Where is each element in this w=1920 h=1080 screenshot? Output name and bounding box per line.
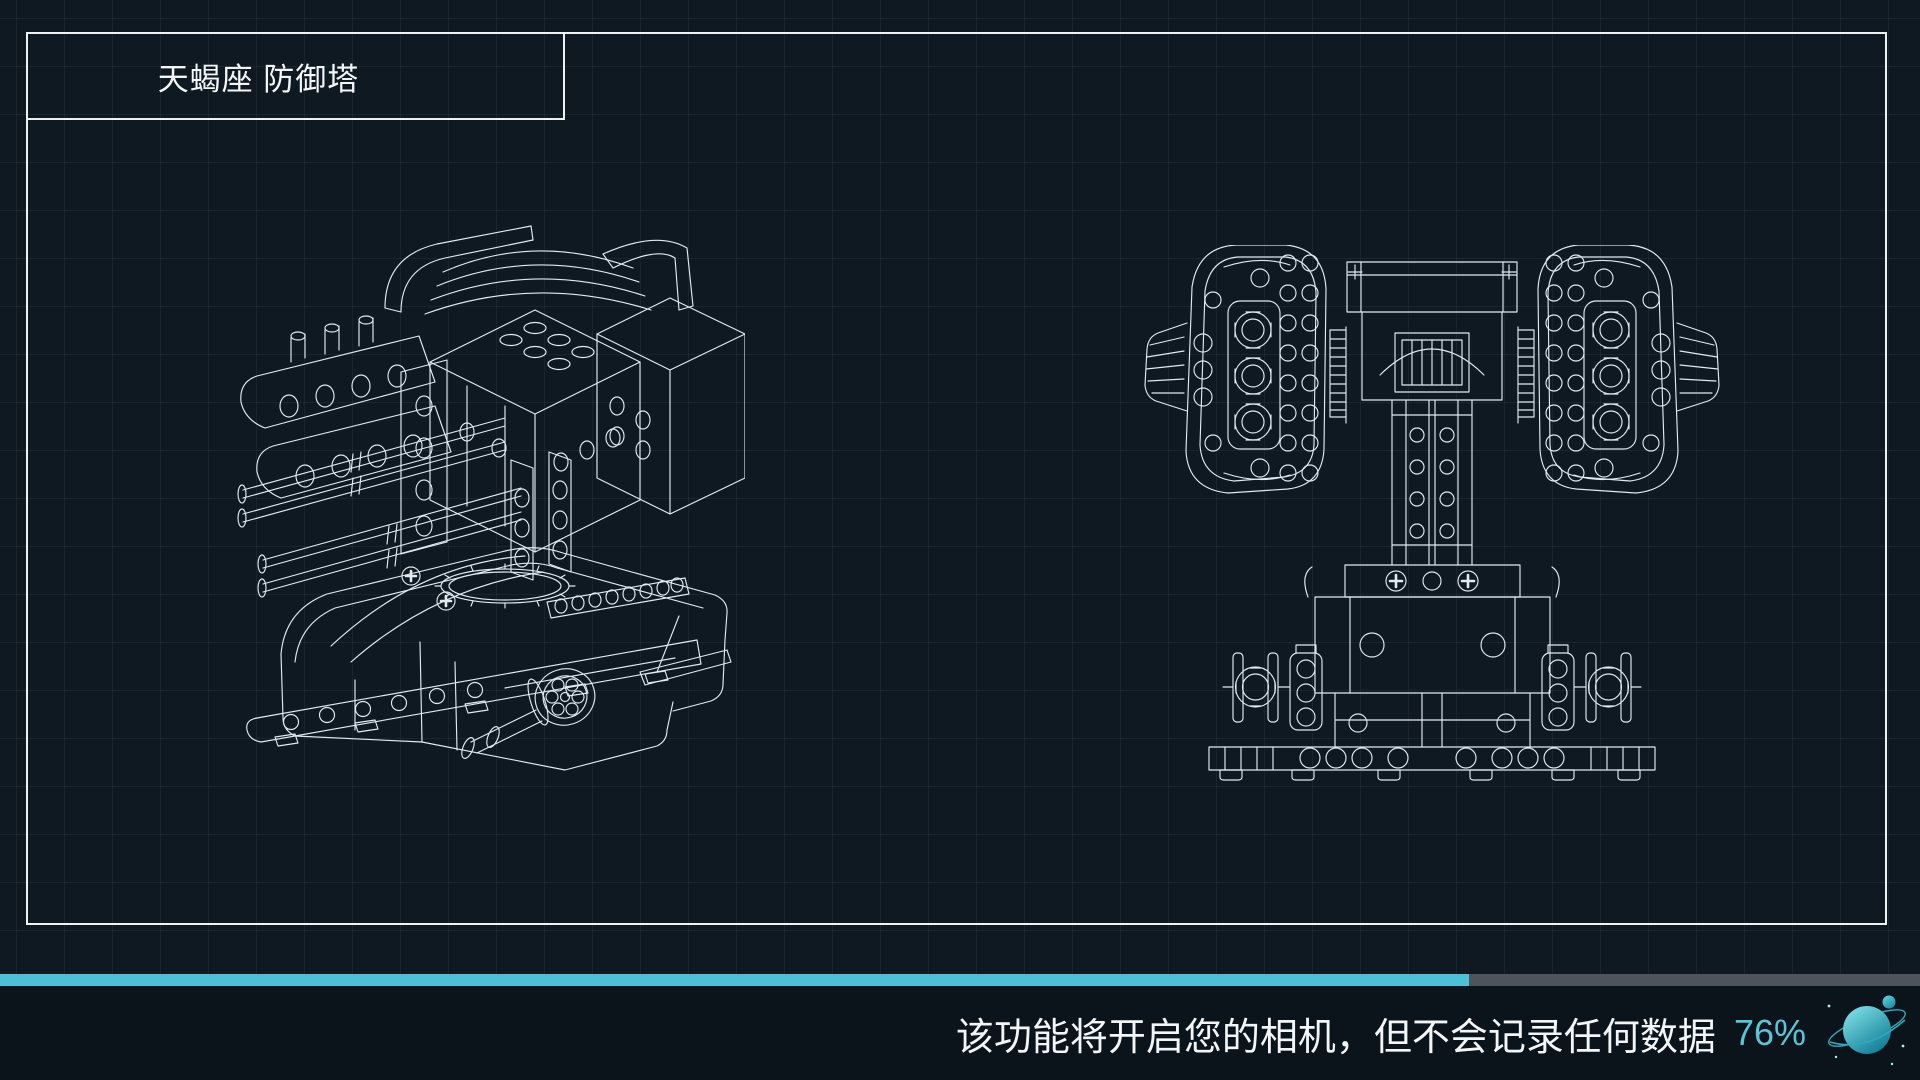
progress-bar-fill	[0, 974, 1469, 986]
turntable-gear	[435, 564, 575, 608]
base-plate	[247, 640, 701, 746]
handle-left	[385, 226, 533, 312]
launcher-pods	[241, 316, 451, 498]
progress-bar	[0, 974, 1920, 986]
page-title: 天蝎座 防御塔	[158, 54, 360, 99]
front-center-structure	[1209, 262, 1655, 780]
model-front-view	[1140, 245, 1725, 785]
turret-base	[281, 548, 731, 770]
blueprint-canvas: 天蝎座 防御塔	[0, 0, 1920, 986]
turret-top-arcs	[425, 251, 651, 314]
progress-percent: 76%	[1734, 1012, 1806, 1054]
model-isometric-view	[205, 210, 745, 800]
turret-body	[430, 310, 640, 552]
rear-pod	[597, 298, 745, 514]
planet-icon	[1822, 993, 1910, 1073]
footer: 该功能将开启您的相机，但不会记录任何数据 76%	[0, 986, 1920, 1080]
title-panel: 天蝎座 防御塔	[26, 32, 565, 120]
camera-privacy-message: 该功能将开启您的相机，但不会记录任何数据	[956, 1006, 1716, 1061]
